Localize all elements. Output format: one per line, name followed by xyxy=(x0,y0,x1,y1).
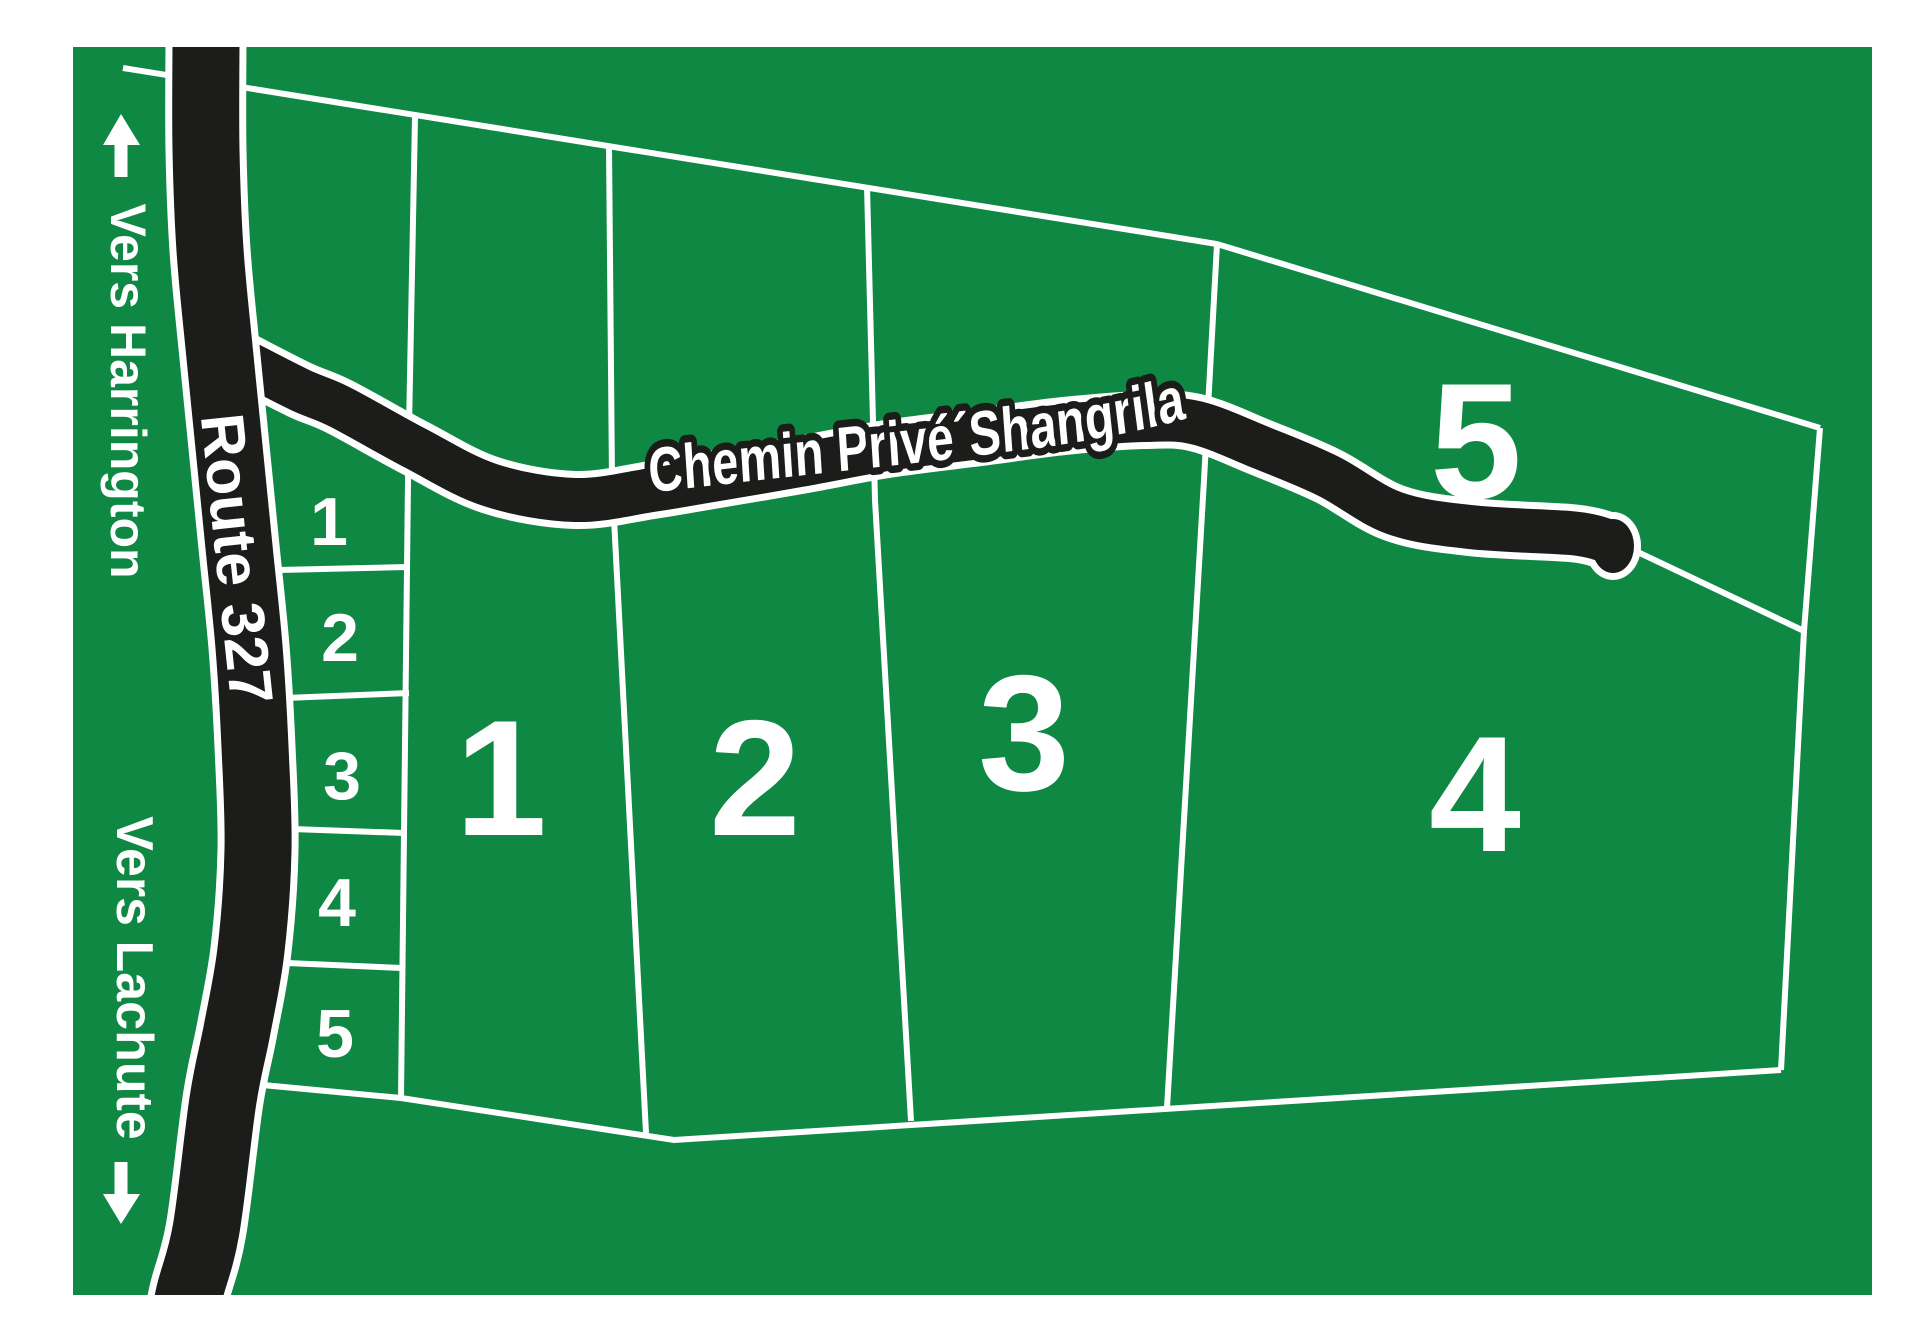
svg-text:5: 5 xyxy=(1430,349,1522,533)
svg-text:Vers Lachute: Vers Lachute xyxy=(105,816,163,1140)
svg-text:2: 2 xyxy=(321,600,359,676)
svg-text:4: 4 xyxy=(1429,702,1521,886)
svg-text:1: 1 xyxy=(310,484,348,560)
svg-text:2: 2 xyxy=(709,686,801,870)
svg-text:1: 1 xyxy=(455,686,547,870)
svg-text:3: 3 xyxy=(978,641,1070,825)
svg-text:4: 4 xyxy=(318,865,356,941)
svg-text:3: 3 xyxy=(323,738,361,814)
svg-text:Vers Harrington: Vers Harrington xyxy=(100,203,156,578)
svg-text:5: 5 xyxy=(316,996,354,1072)
